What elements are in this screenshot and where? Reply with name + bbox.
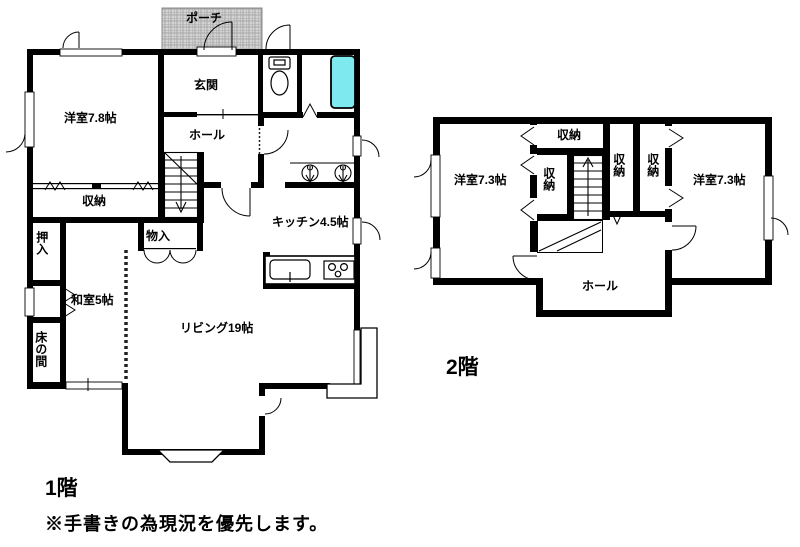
floorplan-canvas: ポーチ 玄関 ホール 洋室7.8帖 収納 押入 物入 和室5帖 床の間 リビング…	[0, 0, 800, 547]
toilet-icon	[269, 57, 290, 95]
room-label-closet-top: 収納	[557, 129, 581, 143]
bathtub-icon	[331, 56, 355, 108]
floor1-caption: 1階	[45, 472, 78, 502]
room-label-storage-1f: 収納	[82, 195, 106, 209]
room-label-western-room-2f-right: 洋室7.3帖	[693, 174, 746, 188]
handwritten-disclaimer-note: ※手書きの為現況を優先します。	[45, 510, 328, 536]
room-label-closet-mid-2: 収納	[645, 153, 659, 177]
bay-window	[158, 450, 224, 462]
room-label-tokonoma: 床の間	[33, 331, 47, 367]
washstand-symbols	[290, 163, 359, 182]
room-label-closet-mid-1: 収納	[611, 153, 625, 177]
room-label-hall-1f: ホール	[189, 129, 225, 143]
room-label-closet-stairs: 収納	[541, 167, 555, 191]
room-label-monoire: 物入	[146, 230, 170, 244]
floor1-walls	[27, 49, 360, 455]
room-label-porch: ポーチ	[186, 12, 222, 26]
floor2-caption: 2階	[446, 351, 479, 381]
veranda-deck	[327, 328, 377, 398]
kitchen-sink-icon	[270, 260, 310, 282]
stove-icon	[324, 261, 354, 279]
room-label-japanese-room: 和室5帖	[71, 294, 114, 308]
room-label-western-room-1f: 洋室7.8帖	[64, 112, 117, 126]
room-label-living: リビング19帖	[180, 322, 253, 336]
stairs-first-floor	[164, 152, 198, 218]
room-label-oshiire: 押入	[34, 231, 48, 255]
room-label-entrance: 玄関	[194, 79, 218, 93]
floorplan-drawing	[0, 0, 800, 547]
room-label-western-room-2f-left: 洋室7.3帖	[454, 174, 507, 188]
room-label-hall-2f: ホール	[582, 280, 618, 294]
room-label-kitchen: キッチン4.5帖	[272, 216, 349, 230]
